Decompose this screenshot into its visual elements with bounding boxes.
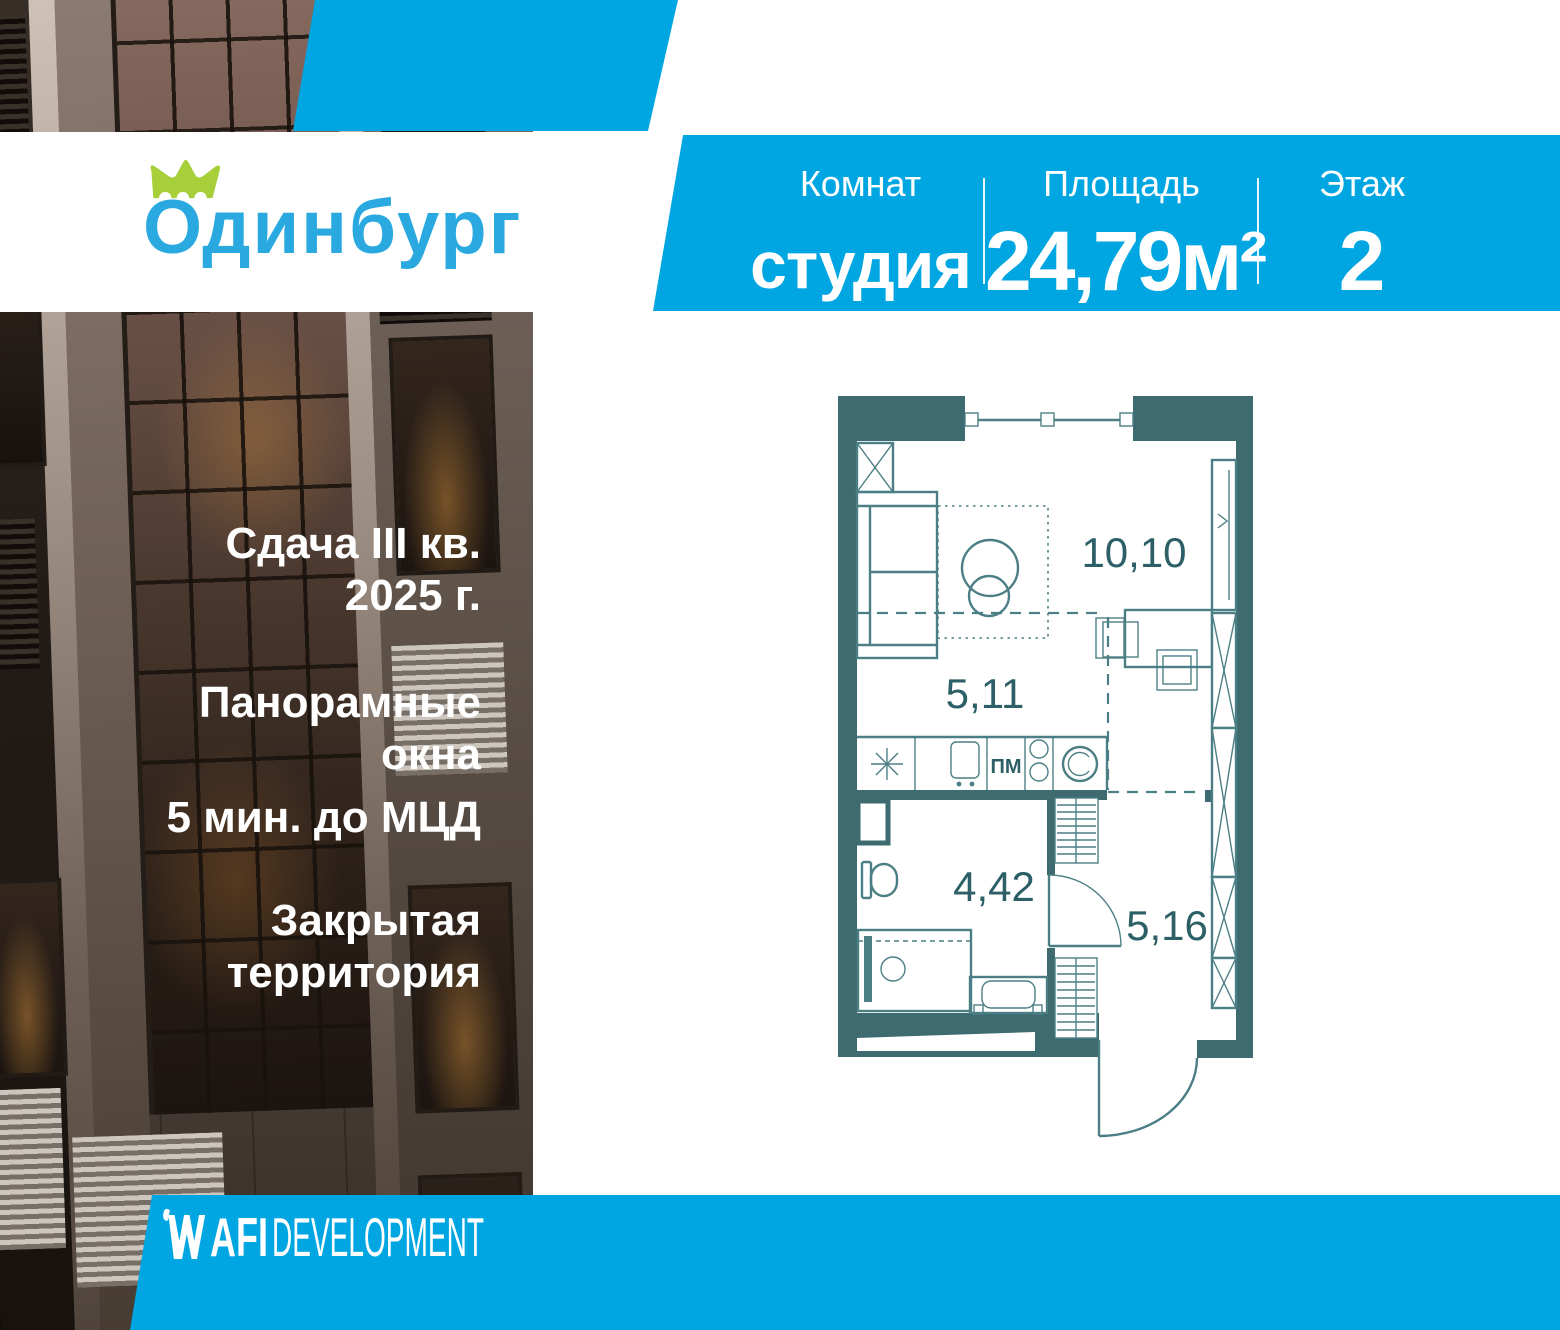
washer-icon [1063, 747, 1097, 781]
caption-transport-line1: 5 мин. до МЦД [167, 793, 482, 842]
caption-territory: Закрытая территория [0, 895, 481, 999]
entrance-door-icon [1099, 1040, 1197, 1136]
caption-territory-line1: Закрытая [271, 896, 481, 945]
burners-icon [1030, 740, 1048, 781]
caption-delivery: Сдача III кв. 2025 г. [0, 518, 481, 622]
caption-territory-line2: территория [227, 948, 481, 997]
developer-name-bold: AFI [210, 1207, 268, 1265]
washbasin-icon [970, 977, 1047, 1014]
afi-mark-icon [163, 1209, 205, 1259]
zone-dashed-boundary [858, 613, 1203, 792]
area-value: 24,79м² [985, 213, 1258, 310]
room-area-bath: 4,42 [953, 863, 1035, 910]
louver-panel-3 [0, 1088, 66, 1251]
room-area-kitchen: 5,11 [946, 670, 1025, 717]
plan-window [965, 413, 1133, 426]
info-col-area: Площадь 24,79м² [985, 135, 1258, 311]
apartment-flyer: Сдача III кв. 2025 г. Панорамные окна 5 … [0, 0, 1560, 1330]
shower-icon [858, 930, 971, 1011]
hall-closet-top [1055, 798, 1098, 863]
wardrobe-icon [857, 443, 893, 492]
developer-banner: AFI DEVELOPMENT [0, 1195, 1560, 1330]
caption-windows-line1: Панорамные [199, 678, 481, 727]
info-col-rooms: Комнат студия [738, 135, 983, 311]
caption-delivery-line1: Сдача III кв. [225, 519, 481, 568]
caption-windows-line2: окна [381, 730, 481, 779]
sink-icon [951, 742, 979, 786]
rooms-value: студия [738, 227, 983, 303]
sofa-icon [857, 492, 937, 658]
info-col-floor: Этаж 2 [1262, 135, 1462, 311]
floor-plan: ПМ [830, 390, 1270, 1150]
bathroom-door-icon [1049, 875, 1121, 946]
developer-name-light: DEVELOPMENT [272, 1207, 484, 1265]
window-5 [0, 288, 47, 469]
kitchen-counter: ПМ [857, 737, 1107, 790]
room-area-hall: 5,16 [1126, 902, 1208, 949]
dishwasher-label: ПМ [990, 756, 1021, 778]
area-label: Площадь [985, 163, 1258, 205]
developer-logo: AFI DEVELOPMENT [163, 1207, 493, 1265]
closet-column [1212, 613, 1236, 1008]
desk-icon [1096, 610, 1212, 690]
caption-windows: Панорамные окна [0, 677, 481, 781]
hall-closet-bottom [1055, 958, 1097, 1038]
caption-transport: 5 мин. до МЦД [0, 792, 481, 844]
info-divider-2 [1257, 178, 1259, 284]
hob-star-icon [871, 748, 903, 780]
round-table-icon [962, 540, 1018, 616]
floor-value: 2 [1262, 213, 1462, 310]
brand-name: Одинбург [143, 184, 522, 271]
toilet-icon [862, 862, 897, 898]
bath-niche [858, 801, 888, 843]
sliding-wardrobe-icon [1212, 460, 1236, 610]
rooms-label: Комнат [738, 163, 983, 205]
floor-label: Этаж [1262, 163, 1462, 205]
zone-outline [938, 506, 1048, 638]
logo-stripe: Одинбург [0, 132, 690, 312]
room-area-main: 10,10 [1081, 529, 1186, 576]
caption-delivery-line2: 2025 г. [345, 571, 481, 620]
